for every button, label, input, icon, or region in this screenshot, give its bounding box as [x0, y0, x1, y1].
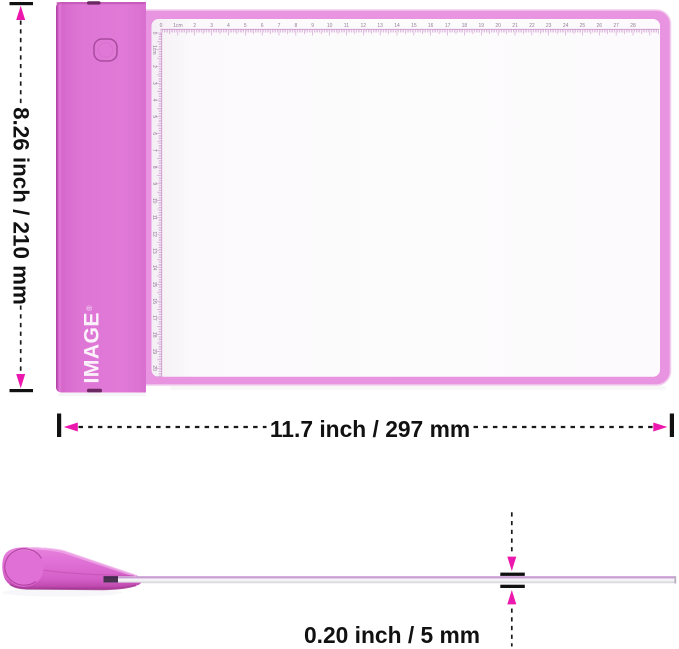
svg-text:20: 20 — [495, 23, 501, 29]
svg-text:27: 27 — [613, 23, 619, 29]
svg-text:5: 5 — [151, 115, 157, 118]
svg-text:12: 12 — [361, 23, 367, 29]
svg-text:10: 10 — [151, 198, 157, 204]
svg-text:8: 8 — [295, 23, 298, 29]
svg-text:19: 19 — [151, 349, 157, 355]
svg-text:0: 0 — [160, 23, 163, 29]
svg-text:13: 13 — [377, 23, 383, 29]
svg-text:11.7 inch / 297 mm: 11.7 inch / 297 mm — [270, 416, 470, 442]
svg-text:18: 18 — [151, 332, 157, 338]
svg-text:26: 26 — [597, 23, 603, 29]
svg-text:8.26 inch / 210 mm: 8.26 inch / 210 mm — [8, 107, 33, 305]
svg-text:5: 5 — [244, 23, 247, 29]
svg-text:25: 25 — [580, 23, 586, 29]
svg-text:16: 16 — [428, 23, 434, 29]
svg-text:22: 22 — [529, 23, 535, 29]
svg-text:17: 17 — [445, 23, 451, 29]
svg-text:7: 7 — [278, 23, 281, 29]
svg-text:1cm: 1cm — [151, 45, 157, 54]
svg-text:24: 24 — [563, 23, 569, 29]
svg-text:23: 23 — [546, 23, 552, 29]
svg-text:18: 18 — [462, 23, 468, 29]
svg-text:12: 12 — [151, 231, 157, 237]
svg-text:®: ® — [85, 305, 94, 311]
svg-text:3: 3 — [210, 23, 213, 29]
svg-text:2: 2 — [151, 65, 157, 68]
svg-text:21: 21 — [512, 23, 518, 29]
svg-text:19: 19 — [479, 23, 485, 29]
svg-text:0: 0 — [151, 32, 157, 35]
svg-text:28: 28 — [630, 23, 636, 29]
svg-text:2: 2 — [193, 23, 196, 29]
svg-text:20: 20 — [151, 365, 157, 371]
svg-text:9: 9 — [151, 182, 157, 185]
svg-text:15: 15 — [151, 282, 157, 288]
svg-text:7: 7 — [151, 149, 157, 152]
svg-text:16: 16 — [151, 298, 157, 304]
svg-text:15: 15 — [411, 23, 417, 29]
svg-text:14: 14 — [151, 265, 157, 271]
svg-text:IMAGE: IMAGE — [80, 312, 103, 383]
svg-text:4: 4 — [151, 99, 157, 102]
svg-text:0.20 inch / 5 mm: 0.20 inch / 5 mm — [304, 622, 480, 648]
svg-text:8: 8 — [151, 166, 157, 169]
svg-text:11: 11 — [151, 215, 157, 220]
svg-text:13: 13 — [151, 248, 157, 254]
svg-text:6: 6 — [151, 132, 157, 135]
svg-text:9: 9 — [311, 23, 314, 29]
svg-text:6: 6 — [261, 23, 264, 29]
svg-text:4: 4 — [227, 23, 230, 29]
svg-text:3: 3 — [151, 82, 157, 85]
svg-text:17: 17 — [151, 315, 157, 321]
svg-text:10: 10 — [327, 23, 333, 29]
svg-text:11: 11 — [344, 23, 349, 29]
svg-text:14: 14 — [394, 23, 400, 29]
svg-text:1cm: 1cm — [173, 23, 182, 29]
